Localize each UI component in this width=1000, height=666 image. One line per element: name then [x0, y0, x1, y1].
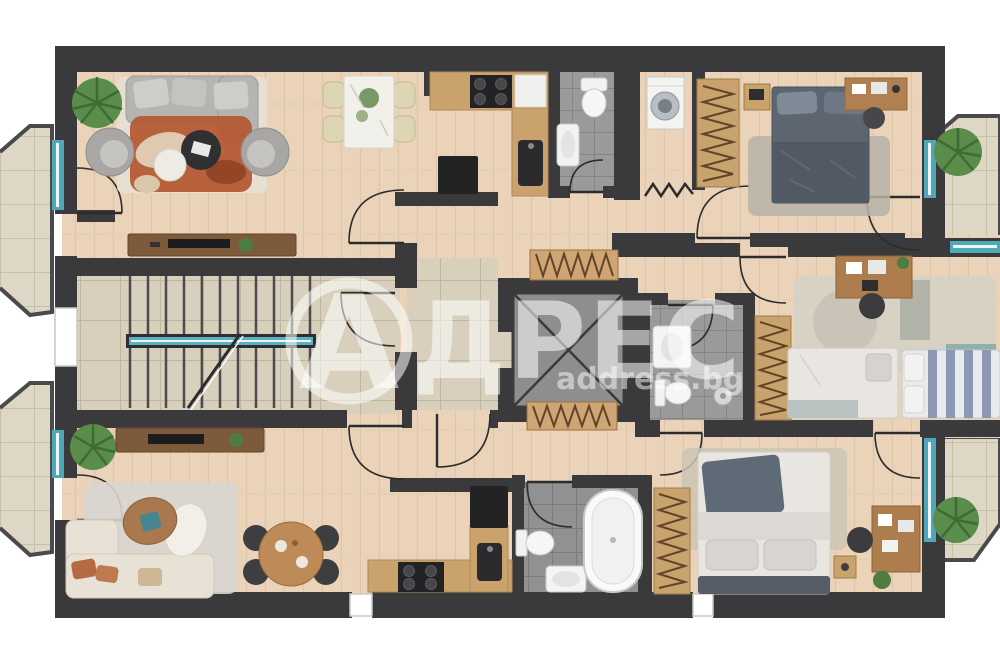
chair-kids — [859, 293, 885, 319]
window-kitchen-bottom — [350, 594, 372, 616]
toilet-bath-bottom — [516, 530, 554, 556]
bed-kids-1 — [788, 348, 898, 418]
bathtub — [584, 490, 642, 592]
watermark-url: address.bg — [556, 362, 744, 397]
window-bath-bottom — [693, 594, 713, 616]
armchair-top-1 — [86, 128, 134, 176]
plant-balcony-bottom-right — [933, 497, 979, 543]
radiator-top — [530, 250, 618, 280]
wardrobe-bedroom-bottom — [654, 488, 690, 594]
fridge-bottom — [470, 486, 508, 528]
window-kids-room — [950, 241, 1000, 253]
balcony-top-left — [0, 126, 52, 315]
watermark-logo-letter: А — [299, 267, 400, 419]
window-living-top-left — [52, 140, 64, 210]
chair-bedroom-bottom — [847, 527, 873, 553]
plant-balcony-top-right — [934, 128, 982, 176]
toilet-wc-top — [581, 78, 607, 117]
bed-kids-2 — [902, 350, 1000, 418]
sink-bath-bottom — [546, 566, 586, 592]
balcony-bottom-left — [0, 383, 52, 555]
coffee-table-dark — [181, 130, 221, 170]
floorplan-canvas: А ДРЕС address.bg — [0, 0, 1000, 666]
plant-living-bottom — [70, 424, 116, 470]
wardrobe-kids — [755, 316, 791, 420]
chair-bedroom-top — [863, 107, 885, 129]
wardrobe-bedroom-top — [697, 79, 739, 187]
watermark: А ДРЕС address.bg — [291, 267, 744, 419]
washing-machine — [647, 77, 684, 129]
sink-wc-top — [557, 124, 579, 166]
radiator-bottom — [527, 402, 617, 430]
fridge-top — [438, 156, 478, 194]
nightstand-bottom — [834, 556, 856, 578]
window-bedroom-top-right — [924, 140, 936, 198]
kitchen-appliance-white — [515, 75, 546, 107]
armchair-top-2 — [241, 128, 289, 176]
nightstand-top-left — [744, 84, 770, 110]
sideboard-tv-top — [128, 234, 296, 256]
window-living-bottom-left — [52, 430, 64, 478]
entrance-gap-stairwell — [55, 308, 77, 366]
floorplan-svg: А ДРЕС address.bg — [0, 0, 1000, 666]
side-table-white — [154, 149, 186, 181]
bed-bottom — [698, 452, 830, 594]
sideboard-tv-bottom — [116, 428, 264, 452]
pouf — [134, 175, 160, 193]
